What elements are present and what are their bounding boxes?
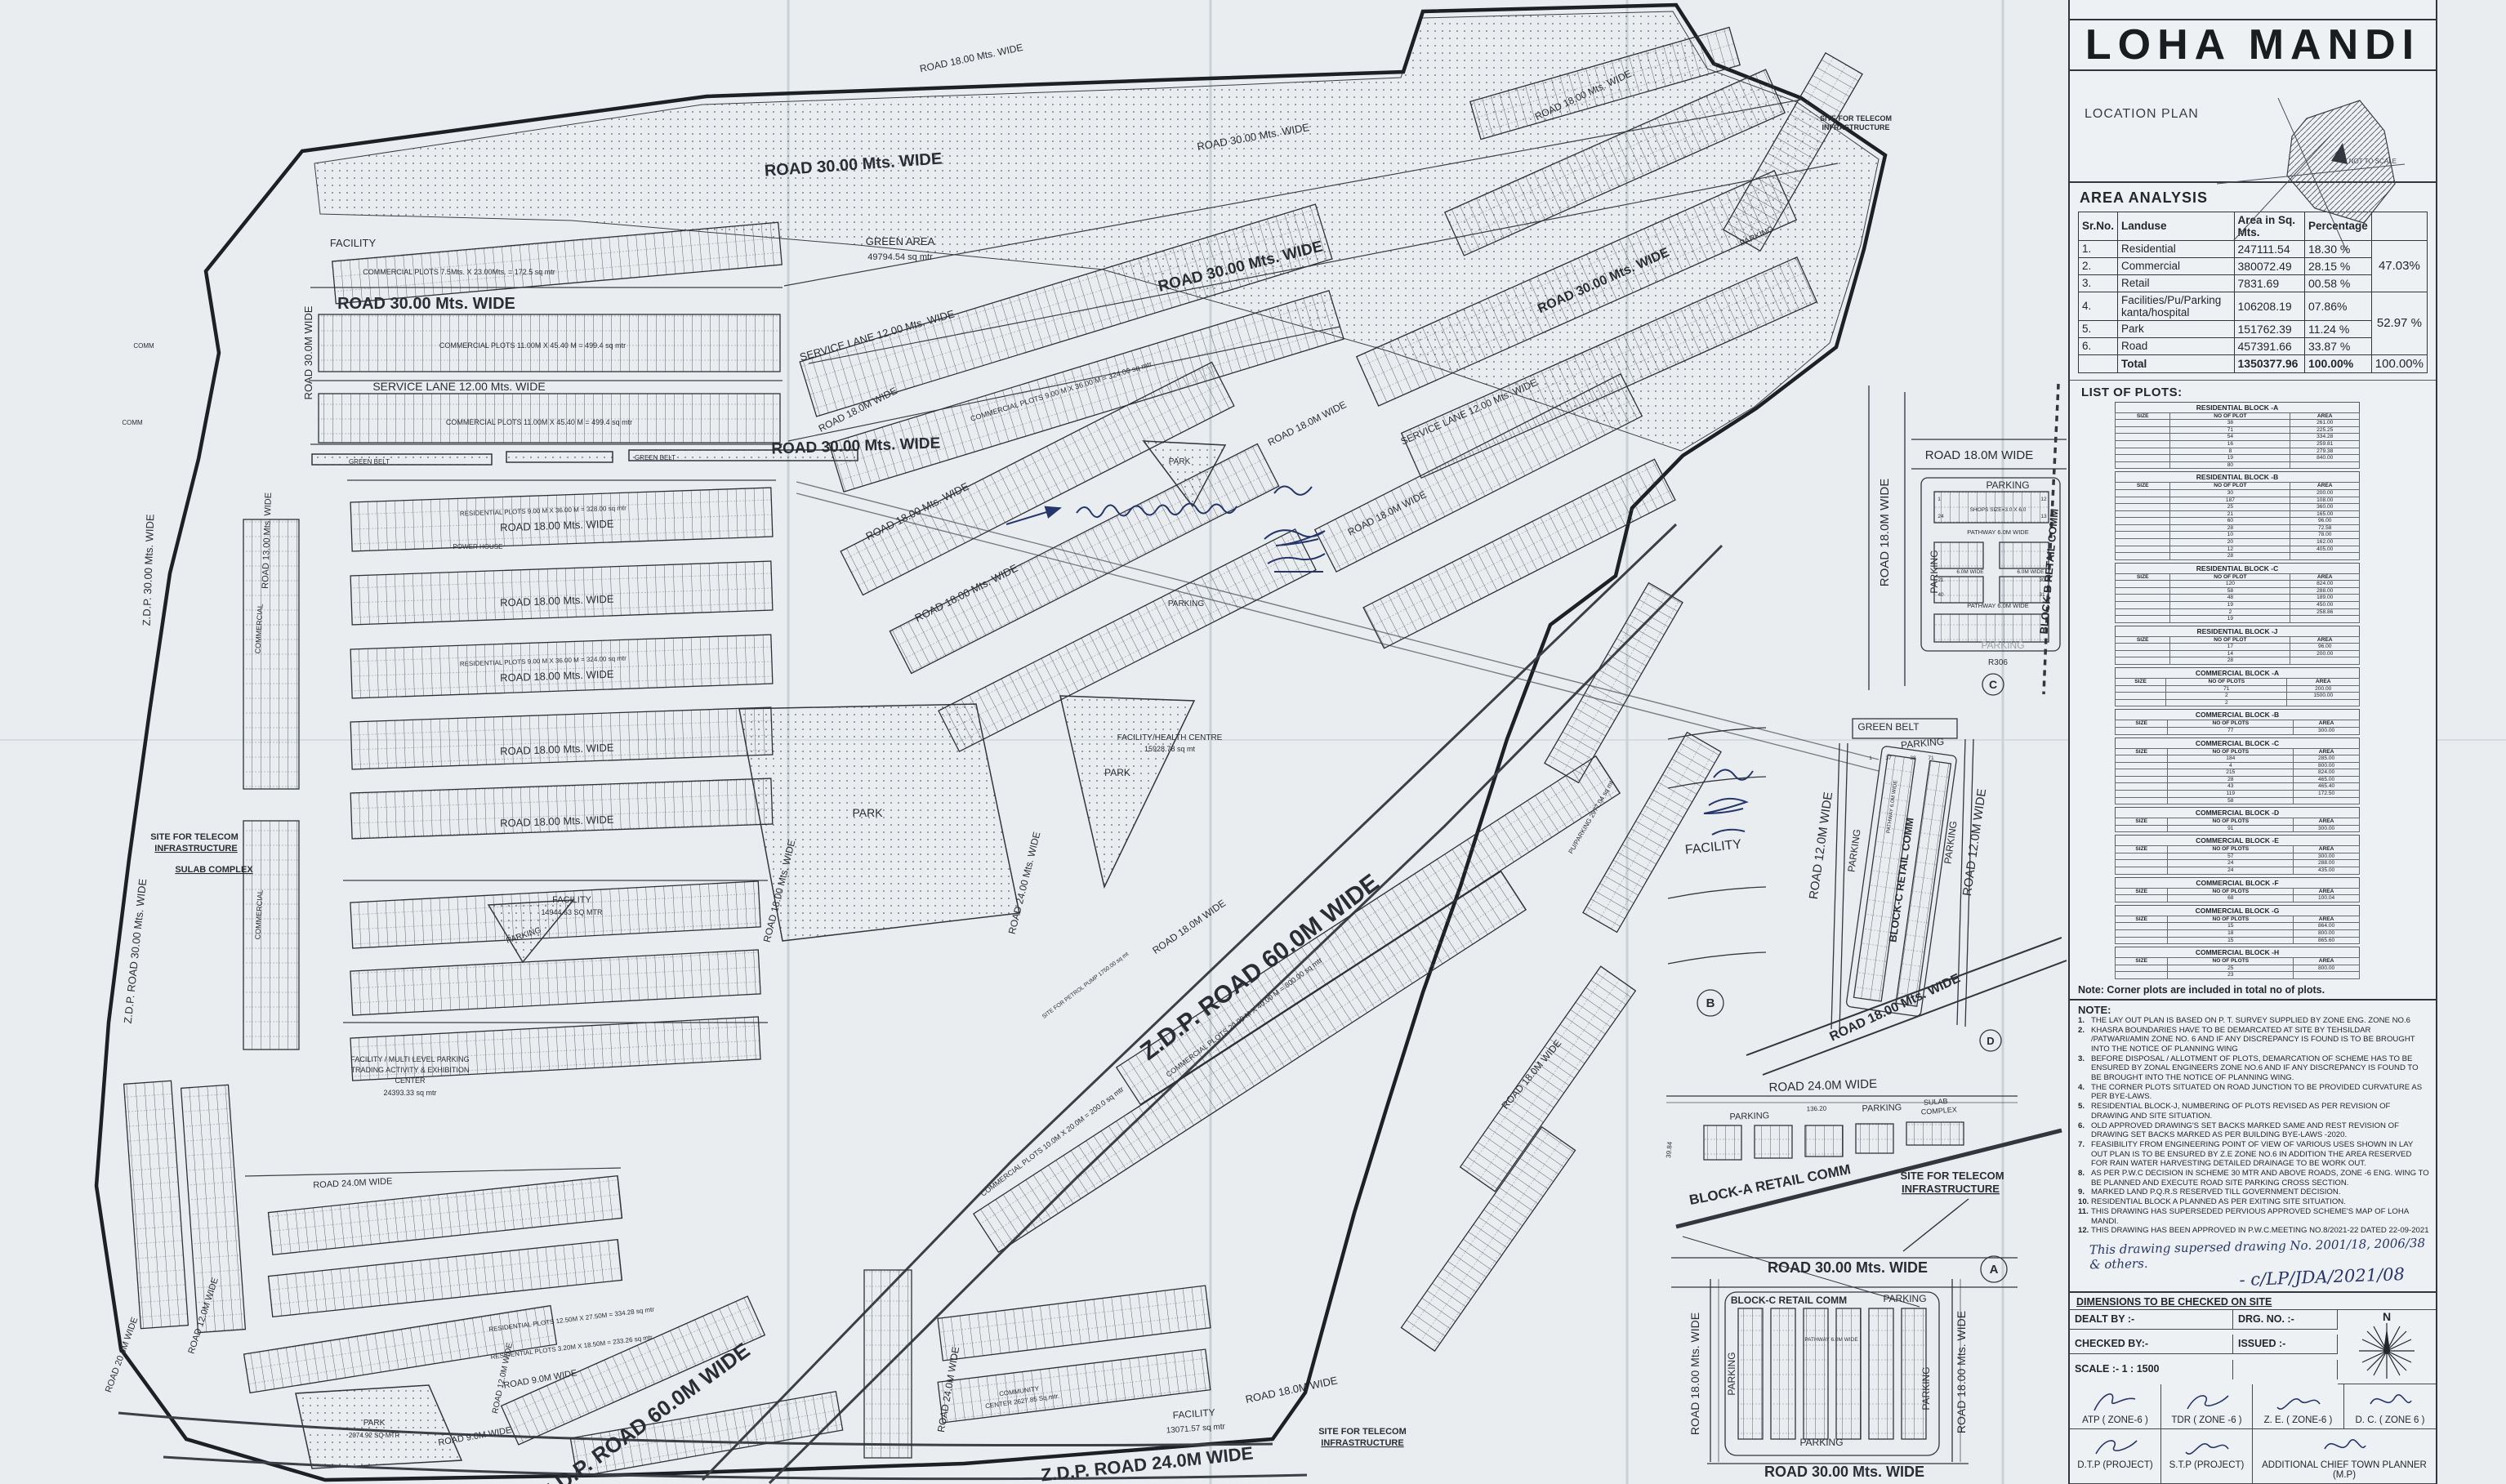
map-label: SITE FOR TELECOM xyxy=(1820,114,1892,123)
signature-label: ADDITIONAL CHIEF TOWN PLANNER (M.P) xyxy=(2262,1460,2427,1480)
location-plan-sketch xyxy=(2209,86,2413,274)
plot-block-table: RESIDENTIAL BLOCK -CSIZENO OF PLOTAREA 1… xyxy=(2115,563,2360,623)
plot-block-table: RESIDENTIAL BLOCK -BSIZENO OF PLOTAREA 3… xyxy=(2115,471,2360,559)
list-of-plots-section: LIST OF PLOTS: RESIDENTIAL BLOCK -ASIZEN… xyxy=(2070,381,2436,999)
signature-label: D. C. ( ZONE 6 ) xyxy=(2356,1415,2425,1425)
location-plan-section: LOCATION PLAN NOT TO SCALE xyxy=(2070,71,2436,183)
map-label: PARKING xyxy=(1726,1352,1737,1395)
signature-cell: Z. E. ( ZONE-6 ) xyxy=(2253,1384,2344,1429)
map-label: 40 xyxy=(1937,592,1944,598)
list-of-plots-title: LIST OF PLOTS: xyxy=(2081,385,2436,399)
map-label: ROAD 18.00 Mts. WIDE xyxy=(1955,1311,1968,1433)
map-label: ROAD 18.0M WIDE xyxy=(1925,448,2034,462)
map-label: COMMERCIAL PLOTS 11.00M X 45.40 M = 499.… xyxy=(439,341,626,350)
map-label: FACILITY xyxy=(330,237,377,249)
signature-cell: D. C. ( ZONE 6 ) xyxy=(2344,1384,2436,1429)
note-item: 9.MARKED LAND P.Q.R.S RESERVED TILL GOVE… xyxy=(2078,1188,2429,1197)
map-label: INFRASTRUCTURE xyxy=(154,844,237,853)
signature-label: S.T.P (PROJECT) xyxy=(2169,1460,2245,1470)
note-item: 1.THE LAY OUT PLAN IS BASED ON P. T. SUR… xyxy=(2078,1016,2429,1026)
signature-cell: S.T.P (PROJECT) xyxy=(2161,1429,2253,1484)
signature-label: D.T.P (PROJECT) xyxy=(2077,1460,2152,1470)
dealt-by-field: DEALT BY :- xyxy=(2070,1310,2233,1330)
map-label: ROAD 18.00 Mts. WIDE xyxy=(1688,1312,1701,1435)
signature-scribble xyxy=(2183,1388,2232,1415)
note-item: 3.BEFORE DISPOSAL / ALLOTMENT OF PLOTS, … xyxy=(2078,1054,2429,1083)
map-label: CENTER xyxy=(395,1076,426,1085)
plot-block-table: RESIDENTIAL BLOCK -ASIZENO OF PLOTAREA 3… xyxy=(2115,402,2360,470)
plot-block-table: COMMERCIAL BLOCK -CSIZENO OF PLOTSAREA 1… xyxy=(2115,738,2360,805)
map-label: PARKING xyxy=(1929,550,1940,593)
scanned-layout-plan-sheet: ROAD 30.00 Mts. WIDEROAD 30.00 Mts. WIDE… xyxy=(0,0,2506,1484)
scale-field: SCALE :- 1 : 1500 xyxy=(2070,1360,2233,1379)
map-label: SHOPS SIZE=3.0 X 6.0 xyxy=(1970,507,2027,513)
map-label: 24393.33 sq mtr xyxy=(383,1089,436,1097)
map-label: INFRASTRUCTURE xyxy=(1902,1183,2000,1195)
map-label: GREEN AREA xyxy=(866,235,935,247)
map-label: PARKING xyxy=(1729,1111,1769,1122)
note-item: 7.FEASIBILITY FROM ENGINEERING POINT OF … xyxy=(2078,1140,2429,1169)
plot-strip xyxy=(864,1270,912,1458)
note-item: 11.THIS DRAWING HAS SUPERSEDED PERVIOUS … xyxy=(2078,1207,2429,1226)
signature-cell: TDR ( ZONE -6 ) xyxy=(2161,1384,2253,1429)
corner-plots-note: Note: Corner plots are included in total… xyxy=(2078,984,2436,996)
map-label: GREEN BELT xyxy=(635,454,676,461)
map-label: PARKING xyxy=(1862,1103,1902,1114)
map-label: SITE FOR TELECOM xyxy=(1318,1427,1407,1437)
map-label: 21 xyxy=(1937,577,1944,583)
signature-scribble xyxy=(2183,1433,2232,1460)
drawing-info-section: DIMENSIONS TO BE CHECKED ON SITE DEALT B… xyxy=(2070,1291,2436,1484)
map-label: ROAD 18.0M WIDE xyxy=(1878,479,1892,587)
map-label: INFRASTRUCTURE xyxy=(1321,1438,1403,1448)
plot-tables: RESIDENTIAL BLOCK -ASIZENO OF PLOTAREA 3… xyxy=(2115,402,2360,979)
area-row: 4.Facilities/Pu/Parking kanta/hospital10… xyxy=(2079,292,2428,320)
map-label: POWER HOUSE xyxy=(453,543,503,550)
map-label: TRADING ACTIVITY & EXHIBITION xyxy=(351,1066,470,1074)
signature-label: TDR ( ZONE -6 ) xyxy=(2171,1415,2241,1425)
plot-block-table: COMMERCIAL BLOCK -BSIZENO OF PLOTSAREA 7… xyxy=(2115,709,2360,734)
signature-row-2: D.T.P (PROJECT) S.T.P (PROJECT) ADDITION… xyxy=(2070,1429,2436,1484)
map-label: 24 xyxy=(1937,514,1944,519)
map-label: PATHWAY 6.0M WIDE xyxy=(1967,602,2028,609)
map-label: PARKING xyxy=(1986,479,2029,491)
note-item: 5.RESIDENTIAL BLOCK-J, NUMBERING OF PLOT… xyxy=(2078,1102,2429,1121)
map-label: PARK xyxy=(1104,767,1130,778)
map-label: PARKING xyxy=(1799,1437,1843,1448)
map-label: PATHWAY 6.0M WIDE xyxy=(1967,528,2028,536)
map-label: SERVICE LANE 12.00 Mts. WIDE xyxy=(372,380,545,393)
map-label: 49794.54 sq mtr xyxy=(867,252,933,262)
note-item: 12.THIS DRAWING HAS BEEN APPROVED IN P.W… xyxy=(2078,1226,2429,1236)
north-compass: N xyxy=(2338,1310,2436,1384)
title-block: J. DA LOHA MANDI LOCATION PLAN NOT TO SC… xyxy=(2068,0,2437,1484)
map-label: FACILITY / MULTI LEVEL PARKING xyxy=(350,1055,469,1063)
map-label: 6.0M WIDE xyxy=(2017,569,2044,575)
map-label: 12 xyxy=(2040,497,2047,502)
map-label: 39.84 xyxy=(1665,1141,1674,1158)
map-label: 1 xyxy=(1869,755,1872,761)
signature-scribble xyxy=(2366,1388,2415,1415)
blank-cell xyxy=(2233,1360,2338,1379)
not-to-scale-note: NOT TO SCALE xyxy=(2349,158,2397,165)
map-label: 2074.92 SQ MTR xyxy=(349,1432,399,1439)
map-label: A xyxy=(1990,1263,1999,1277)
map-label: 38 xyxy=(1910,755,1916,761)
signature-scribble xyxy=(2091,1388,2140,1415)
map-label: 136.20 xyxy=(1807,1105,1827,1113)
signature-scribble xyxy=(2320,1433,2369,1460)
map-label: PARKING xyxy=(1981,640,2024,651)
plot-block-table: COMMERCIAL BLOCK -GSIZENO OF PLOTSAREA 1… xyxy=(2115,905,2360,944)
map-label: PATHWAY 6.0M WIDE xyxy=(1804,1337,1858,1343)
map-label: SULAB xyxy=(1924,1097,1948,1107)
map-label: 6.0M WIDE xyxy=(1956,569,1984,575)
plot-block-table: COMMERCIAL BLOCK -ASIZENO OF PLOTSAREA 7… xyxy=(2115,667,2360,706)
signature-scribble xyxy=(2091,1433,2140,1460)
checked-by-field: CHECKED BY:- xyxy=(2070,1335,2233,1354)
north-letter: N xyxy=(2383,1310,2391,1323)
map-label: 37 xyxy=(1885,755,1892,761)
map-label: COMM xyxy=(122,419,143,426)
scheme-title: LOHA MANDI xyxy=(2070,19,2436,71)
map-label: COMMERCIAL PLOTS 7.5Mts. X 23.00Mts. = 1… xyxy=(363,268,555,276)
plot-block-table: COMMERCIAL BLOCK -HSIZENO OF PLOTSAREA 2… xyxy=(2115,947,2360,979)
map-label: BLOCK-C RETAIL COMM xyxy=(1731,1295,1847,1306)
map-label: 31 xyxy=(2039,592,2045,598)
map-label: ROAD 30.0M WIDE xyxy=(302,305,314,399)
signature-cell: ATP ( ZONE-6 ) xyxy=(2070,1384,2161,1429)
note-item: 6.OLD APPROVED DRAWING'S SET BACKS MARKE… xyxy=(2078,1121,2429,1140)
map-label: 15928.78 sq mt xyxy=(1144,745,1196,753)
area-col-header: Sr.No. xyxy=(2079,212,2118,240)
map-label: PARK xyxy=(852,806,883,819)
map-label: FACILITY/HEALTH CENTRE xyxy=(1117,733,1223,742)
map-label: ROAD 30.00 Mts. WIDE xyxy=(337,295,515,313)
map-label: 30 xyxy=(2039,577,2045,583)
signature-label: ATP ( ZONE-6 ) xyxy=(2082,1415,2148,1425)
notes-list: 1.THE LAY OUT PLAN IS BASED ON P. T. SUR… xyxy=(2078,1016,2429,1236)
plot-block-table: COMMERCIAL BLOCK -DSIZENO OF PLOTSAREA 9… xyxy=(2115,807,2360,832)
plot-strip xyxy=(243,821,299,1049)
notes-section: NOTE: 1.THE LAY OUT PLAN IS BASED ON P. … xyxy=(2070,999,2436,1291)
plot-block-table: COMMERCIAL BLOCK -ESIZENO OF PLOTSAREA 5… xyxy=(2115,835,2360,874)
map-label: COMM xyxy=(133,342,154,350)
map-label: SITE FOR TELECOM xyxy=(150,832,239,842)
notes-title: NOTE: xyxy=(2078,1004,2429,1016)
signature-cell: ADDITIONAL CHIEF TOWN PLANNER (M.P) xyxy=(2253,1429,2436,1484)
plot-block-table: COMMERCIAL BLOCK -FSIZENO OF PLOTSAREA 6… xyxy=(2115,877,2360,902)
map-label: INFRASTRUCTURE xyxy=(1822,123,1890,131)
signature-row-1: ATP ( ZONE-6 ) TDR ( ZONE -6 ) Z. E. ( Z… xyxy=(2070,1384,2436,1429)
map-label: C xyxy=(1989,678,1997,691)
issued-field: ISSUED :- xyxy=(2233,1335,2338,1354)
map-label: R306 xyxy=(1988,658,2008,667)
note-item: 4.THE CORNER PLOTS SITUATED ON ROAD JUNC… xyxy=(2078,1083,2429,1102)
drawing-info-grid: DEALT BY :- DRG. NO. :- N xyxy=(2070,1309,2436,1384)
map-label: GREEN BELT xyxy=(349,458,390,466)
note-item: 8.AS PER P.W.C DECISION IN SCHEME 30 MTR… xyxy=(2078,1169,2429,1188)
map-label: COMMERCIAL PLOTS 11.00M X 45.40 M = 499.… xyxy=(446,418,632,426)
map-label: 14944.63 SQ MTR xyxy=(541,908,603,916)
drg-no-field: DRG. NO. :- xyxy=(2233,1310,2338,1330)
plot-block-table: RESIDENTIAL BLOCK -JSIZENO OF PLOTAREA 1… xyxy=(2115,626,2360,665)
map-label: 1 xyxy=(1937,497,1941,502)
map-label: PARKING xyxy=(1883,1293,1926,1304)
signature-label: Z. E. ( ZONE-6 ) xyxy=(2264,1415,2333,1425)
map-label: PARK xyxy=(1169,457,1191,466)
signature-cell: D.T.P (PROJECT) xyxy=(2070,1429,2161,1484)
area-total-row: Total1350377.96100.00%100.00% xyxy=(2079,354,2428,372)
note-item: 10.RESIDENTIAL BLOCK A PLANNED AS PER EX… xyxy=(2078,1197,2429,1207)
map-label: FACILITY xyxy=(552,895,591,905)
dimensions-note: DIMENSIONS TO BE CHECKED ON SITE xyxy=(2076,1296,2436,1308)
map-label: ROAD 30.00 Mts. WIDE xyxy=(1764,1464,1924,1480)
map-label: D xyxy=(1987,1035,1994,1047)
map-label: B xyxy=(1706,996,1715,1010)
map-label: SITE FOR TELECOM xyxy=(1900,1170,2004,1182)
map-label: PARK xyxy=(363,1419,386,1428)
note-item: 2.KHASRA BOUNDARIES HAVE TO BE DEMARCATE… xyxy=(2078,1026,2429,1054)
map-label: SULAB COMPLEX xyxy=(175,865,253,875)
map-label: PARKING xyxy=(1920,1366,1932,1410)
map-label: 71 xyxy=(1928,755,1934,761)
map-label: ROAD 30.00 Mts. WIDE xyxy=(1768,1259,1928,1276)
map-label: 13 xyxy=(2040,514,2047,519)
map-label: GREEN BELT xyxy=(1857,721,1920,733)
signature-scribble xyxy=(2274,1388,2323,1415)
map-label: PARKING xyxy=(1168,599,1204,608)
location-plan-label: LOCATION PLAN xyxy=(2085,107,2199,122)
